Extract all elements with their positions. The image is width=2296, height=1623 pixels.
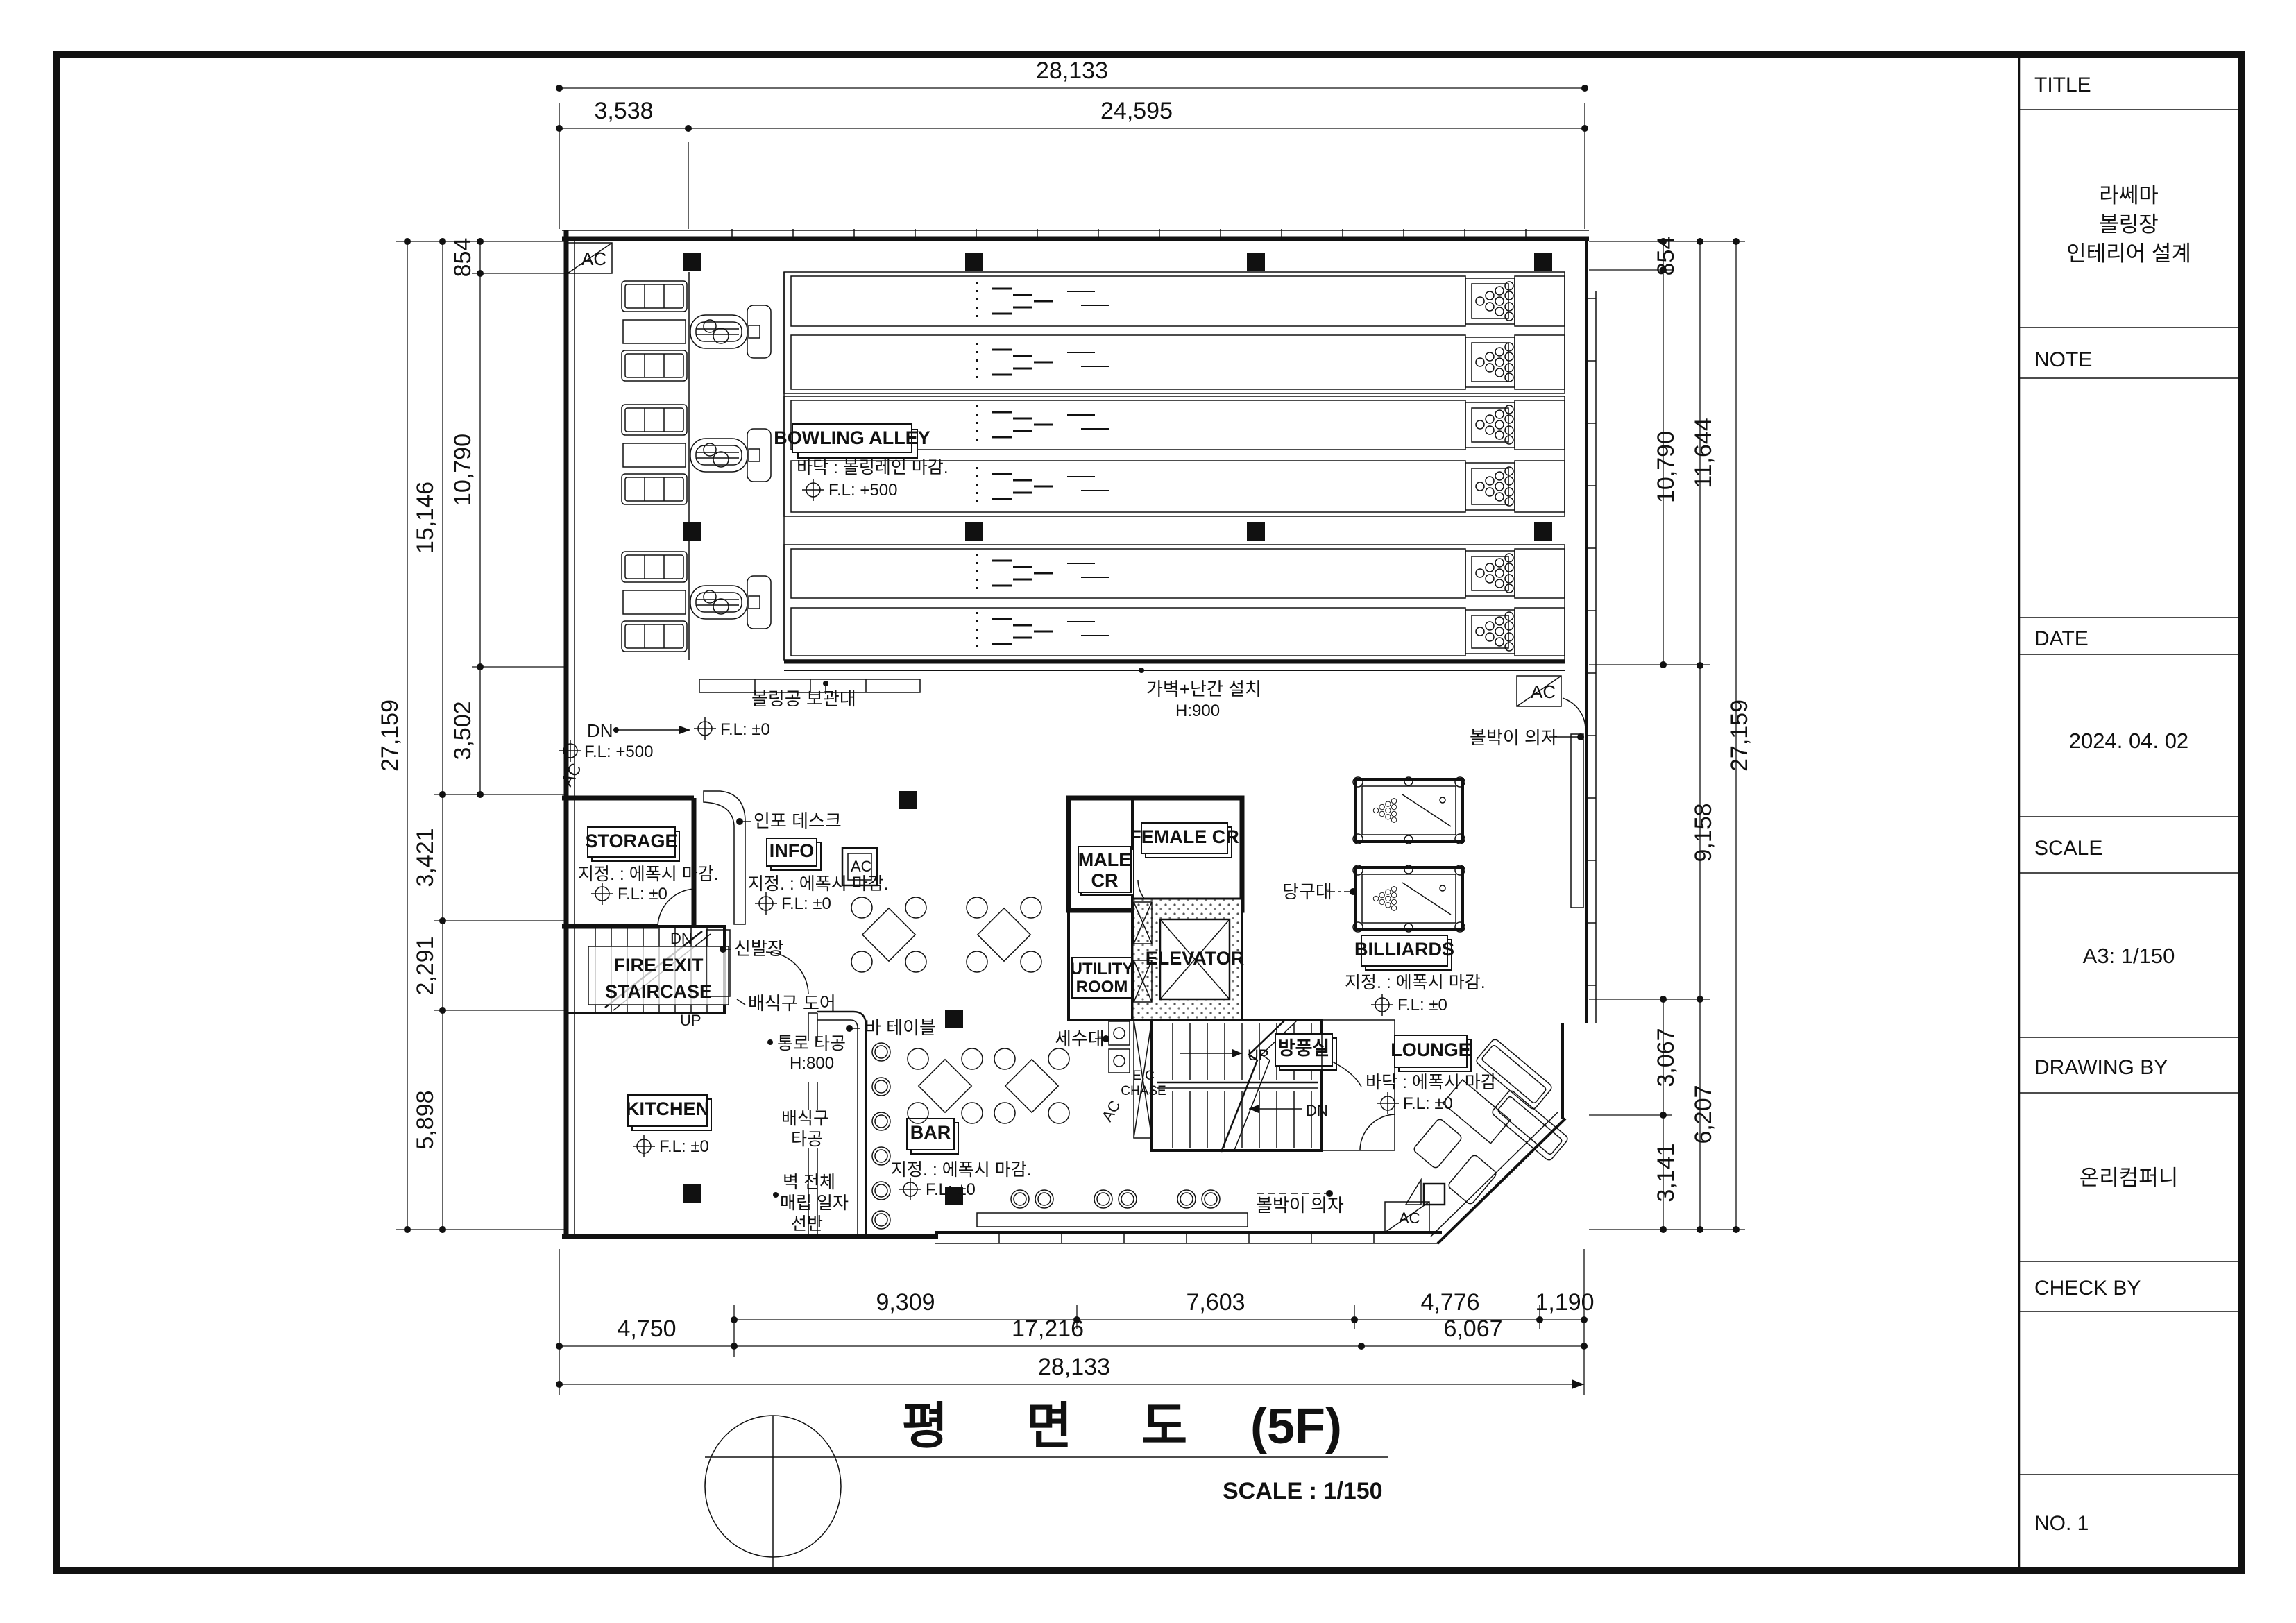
dim-bottom-seg2: 7,603 — [1186, 1289, 1245, 1316]
dim-left-seg3: 3,502 — [450, 701, 476, 760]
project-title-line2: 볼링장 — [2099, 212, 2159, 237]
stairs-dn: DN — [1306, 1102, 1328, 1119]
scale-label: SCALE — [2034, 837, 2102, 860]
kitchen-label: KITCHEN — [626, 1098, 709, 1119]
dim-bottom-seg7: 6,067 — [1443, 1316, 1502, 1342]
passage-height: H:800 — [790, 1054, 834, 1073]
shoe-cabinet-label: 신발장 — [734, 938, 784, 959]
scale-value: A3: 1/150 — [2083, 944, 2175, 968]
plan-title: 평 면 도 (5F) SCALE : 1/150 — [705, 1399, 1388, 1570]
dim-bottom-seg3: 4,776 — [1420, 1289, 1479, 1316]
dim-right-band: 11,644 — [1690, 418, 1717, 488]
ac-label-top-left: AC — [581, 248, 606, 269]
drawing-by-value: 온리컴퍼니 — [2080, 1166, 2179, 1190]
billiard-table-2 — [1353, 865, 1465, 932]
dim-bottom-seg6: 17,216 — [1012, 1316, 1084, 1342]
lane-1 — [791, 276, 1565, 326]
ec-chase-line2: CHASE — [1121, 1084, 1166, 1098]
bowling-alley-label: BOWLING ALLEY — [774, 427, 930, 448]
washstand: 세수대 AC — [1055, 1021, 1130, 1125]
ac-label-stairs: AC — [1098, 1097, 1124, 1124]
fire-exit-dn: DN — [670, 930, 692, 947]
billiards-area: 당구대 BILLIARDS 지정. : 에폭시 마감. F.L: ±0 — [1282, 777, 1486, 1016]
dim-top-seg1: 3,538 — [594, 98, 653, 124]
dim-right-seg1: 854 — [1653, 237, 1679, 276]
dim-right-seg5: 6,207 — [1690, 1085, 1717, 1144]
female-cr-label: FEMALE CR — [1130, 826, 1239, 847]
info-level: F.L: ±0 — [781, 894, 831, 913]
info-desk: 인포 데스크 INFO 지정. : 에폭시 마감. F.L: ±0 AC — [704, 791, 889, 924]
passage-opening-label: 통로 타공 — [777, 1034, 846, 1053]
wall-shelf-line3: 선반 — [791, 1214, 823, 1234]
drawing-by-label: DRAWING BY — [2034, 1056, 2168, 1079]
info-label: INFO — [769, 840, 815, 861]
dim-right-seg6: 3,141 — [1653, 1143, 1679, 1202]
half-wall-note: 가벽+난간 설치 H:900 — [1139, 668, 1261, 720]
lounge-level: F.L: ±0 — [1403, 1094, 1453, 1113]
dim-bottom-overall: 28,133 — [1038, 1354, 1110, 1380]
ball-rack-label: 볼링공 보관대 — [751, 688, 856, 709]
lounge-area: LOUNGE 바닥 : 에폭시 마감 F.L: ±0 AC — [1366, 1035, 1569, 1232]
lane-2 — [791, 335, 1565, 389]
lane-6 — [791, 608, 1565, 656]
window-counter: 볼박이 의자 — [977, 1190, 1344, 1227]
ball-rack-note: 볼링공 보관대 — [751, 681, 856, 709]
main-stairs: UP DN 방풍실 — [1152, 1020, 1395, 1152]
dimension-right: 854 10,790 3,067 3,141 11,644 9,158 6,20… — [1589, 237, 1753, 1233]
bowling-lanes — [622, 272, 1565, 692]
billiard-table-1 — [1353, 777, 1465, 844]
elevator-label: ELEVATOR — [1146, 948, 1245, 969]
dim-top-seg2: 24,595 — [1100, 98, 1173, 124]
male-cr-line2: CR — [1091, 870, 1119, 891]
dim-left-band: 15,146 — [412, 482, 439, 554]
bar-label: BAR — [910, 1122, 951, 1143]
ball-return-2 — [690, 429, 771, 482]
date-value: 2024. 04. 02 — [2069, 729, 2188, 753]
serving-door-note: 배식구 도어 — [737, 952, 836, 1014]
drawing-sheet: TITLE 라쎄마 볼링장 인테리어 설계 NOTE DATE 2024. 04… — [0, 0, 2296, 1623]
project-title-line1: 라쎄마 — [2099, 183, 2159, 207]
storage-room: STORAGE 지정. : 에폭시 마감. F.L: ±0 — [562, 798, 719, 926]
level-zero-entry: F.L: ±0 — [720, 720, 770, 739]
dim-left-seg6: 5,898 — [412, 1090, 439, 1149]
dim-top-overall: 28,133 — [1036, 58, 1108, 84]
elevator: ELEVATOR E.C CHASE — [1121, 899, 1244, 1138]
info-desk-label: 인포 데스크 — [754, 810, 842, 831]
info-finish: 지정. : 에폭시 마감. — [748, 874, 889, 894]
ball-return-3 — [690, 576, 771, 629]
bar-table-label: 바 테이블 — [865, 1017, 936, 1038]
utility-room: UTILITY ROOM — [1069, 910, 1133, 1020]
male-cr-line1: MALE — [1078, 849, 1132, 870]
ac-label-left-wall: AC — [558, 760, 586, 790]
entry-level-notes: DN F.L: ±0 F.L: +500 AC — [558, 717, 770, 790]
sheet-frame — [57, 54, 2241, 1571]
billiards-label: BILLIARDS — [1354, 939, 1454, 960]
ac-label-bottom: AC — [1399, 1209, 1420, 1227]
billiard-table-label: 당구대 — [1282, 881, 1332, 902]
dim-left-overall: 27,159 — [377, 699, 403, 772]
bowling-alley-level: F.L: +500 — [828, 481, 897, 500]
bowling-alley-floor-note: 바닥 : 볼링레인 마감. — [797, 458, 949, 477]
storage-level: F.L: ±0 — [618, 885, 667, 903]
ac-label-top-right: AC — [1531, 681, 1556, 702]
note-label: NOTE — [2034, 348, 2092, 371]
half-wall-height: H:900 — [1175, 702, 1220, 720]
fire-exit-up: UP — [680, 1012, 701, 1029]
title-label: TITLE — [2034, 74, 2091, 96]
dim-bottom-seg4: 1,190 — [1535, 1289, 1594, 1316]
serving-opening-line2: 타공 — [791, 1130, 823, 1149]
ac-label-info: AC — [851, 858, 872, 875]
restrooms: MALE CR FEMALE CR — [1069, 798, 1242, 910]
dn-label-storage: DN — [587, 720, 613, 741]
utility-line1: UTILITY — [1071, 960, 1134, 978]
bowler-seating — [622, 281, 687, 652]
dimension-bottom: 9,309 7,603 4,776 1,190 4,750 17,216 6,0… — [556, 1249, 1595, 1395]
dim-bottom-seg5: 4,750 — [617, 1316, 676, 1342]
dim-left-seg5: 2,291 — [412, 936, 439, 995]
dim-right-seg3: 9,158 — [1690, 803, 1717, 862]
dim-left-seg2: 10,790 — [450, 434, 476, 506]
dim-right-seg2: 10,790 — [1653, 431, 1679, 503]
project-title-line3: 인테리어 설계 — [2066, 241, 2191, 266]
plan-title-char3: 도 — [1141, 1399, 1187, 1454]
fire-exit-line2: STAIRCASE — [605, 981, 712, 1002]
kitchen: KITCHEN F.L: ±0 통로 타공 H:800 배식구 타공 벽 전체 … — [626, 1013, 849, 1235]
dimension-top: 28,133 3,538 24,595 — [556, 58, 1588, 229]
ball-chair-note-right: 볼박이 의자 — [1470, 727, 1584, 908]
ac-unit-top-right: AC — [1517, 676, 1585, 730]
lounge-label: LOUNGE — [1391, 1039, 1471, 1060]
bar-level: F.L: ±0 — [926, 1180, 976, 1199]
ball-chair-label-right: 볼박이 의자 — [1470, 727, 1558, 748]
wall-shelf-line2: 매립 일자 — [780, 1193, 849, 1213]
title-block: TITLE 라쎄마 볼링장 인테리어 설계 NOTE DATE 2024. 04… — [2019, 74, 2238, 1535]
plan-title-char2: 면 — [1026, 1399, 1072, 1454]
fire-exit-staircase: FIRE EXIT STAIRCASE DN UP — [566, 926, 729, 1029]
ball-return-1 — [690, 305, 771, 358]
utility-line2: ROOM — [1076, 978, 1128, 996]
dimension-left: 27,159 15,146 3,421 2,291 5,898 854 10,7… — [377, 238, 566, 1233]
level-500-lanes: F.L: +500 — [584, 742, 653, 761]
dim-left-seg1: 854 — [450, 238, 476, 278]
serving-opening-line1: 배식구 — [781, 1109, 829, 1128]
storage-label: STORAGE — [585, 831, 677, 851]
sheet-no: NO. 1 — [2034, 1512, 2089, 1535]
dim-right-overall: 27,159 — [1726, 699, 1753, 772]
kitchen-level: F.L: ±0 — [659, 1137, 709, 1156]
fire-exit-line1: FIRE EXIT — [613, 955, 704, 976]
wall-shelf-line1: 벽 전체 — [783, 1173, 835, 1192]
bowling-alley-labels: BOWLING ALLEY 바닥 : 볼링레인 마감. F.L: +500 — [774, 424, 948, 501]
plan-scale-note: SCALE : 1/150 — [1223, 1478, 1383, 1504]
storage-finish: 지정. : 에폭시 마감. — [578, 865, 719, 884]
bar-finish: 지정. : 에폭시 마감. — [891, 1160, 1032, 1180]
dim-right-seg4: 3,067 — [1653, 1028, 1679, 1087]
bar: 바 테이블 BAR 지정. : 에폭시 마감. F.L: ±0 — [817, 1012, 1032, 1234]
plan-title-floor: (5F) — [1250, 1399, 1342, 1454]
floor-plan-canvas: TITLE 라쎄마 볼링장 인테리어 설계 NOTE DATE 2024. 04… — [0, 0, 2296, 1623]
dim-left-seg4: 3,421 — [412, 828, 439, 887]
date-label: DATE — [2034, 627, 2089, 650]
check-by-label: CHECK BY — [2034, 1277, 2141, 1300]
serving-door-label: 배식구 도어 — [748, 993, 836, 1014]
plan-title-char1: 평 — [902, 1399, 948, 1454]
billiards-level: F.L: ±0 — [1397, 996, 1447, 1014]
billiards-finish: 지정. : 에폭시 마감. — [1345, 973, 1486, 992]
half-wall-label: 가벽+난간 설치 — [1146, 679, 1261, 699]
lane-5 — [791, 549, 1565, 598]
ball-chair-label-bottom: 볼박이 의자 — [1256, 1195, 1344, 1216]
dim-bottom-seg1: 9,309 — [876, 1289, 935, 1316]
lounge-floor-note: 바닥 : 에폭시 마감 — [1366, 1073, 1497, 1092]
